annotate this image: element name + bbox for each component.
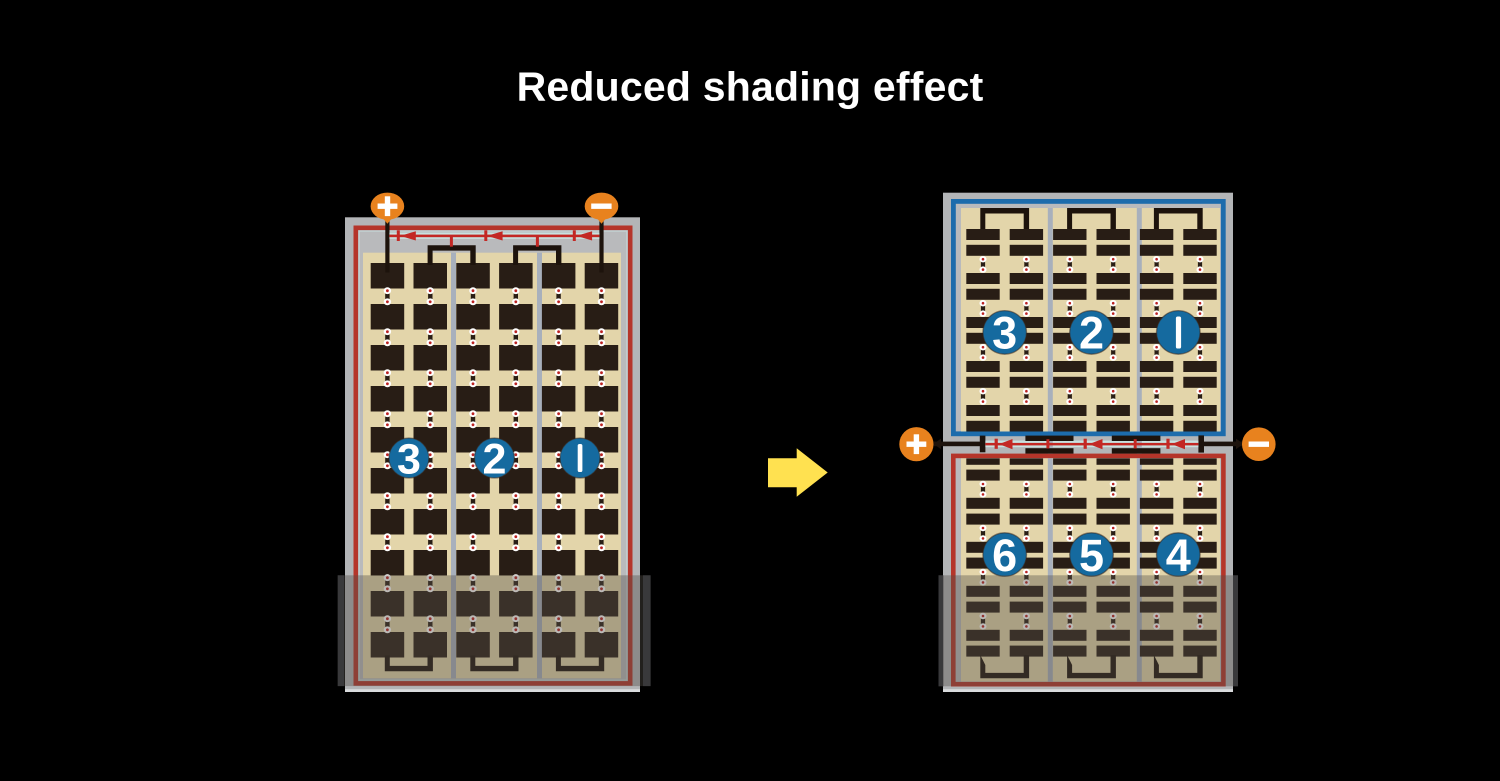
svg-text:6: 6 — [992, 530, 1017, 581]
svg-text:2: 2 — [1079, 308, 1104, 359]
svg-text:3: 3 — [397, 435, 421, 483]
svg-text:5: 5 — [1079, 530, 1104, 581]
svg-text:Reduced shading effect: Reduced shading effect — [517, 64, 984, 110]
svg-text:3: 3 — [992, 308, 1017, 359]
svg-text:2: 2 — [482, 435, 506, 483]
svg-text:4: 4 — [1166, 530, 1191, 581]
